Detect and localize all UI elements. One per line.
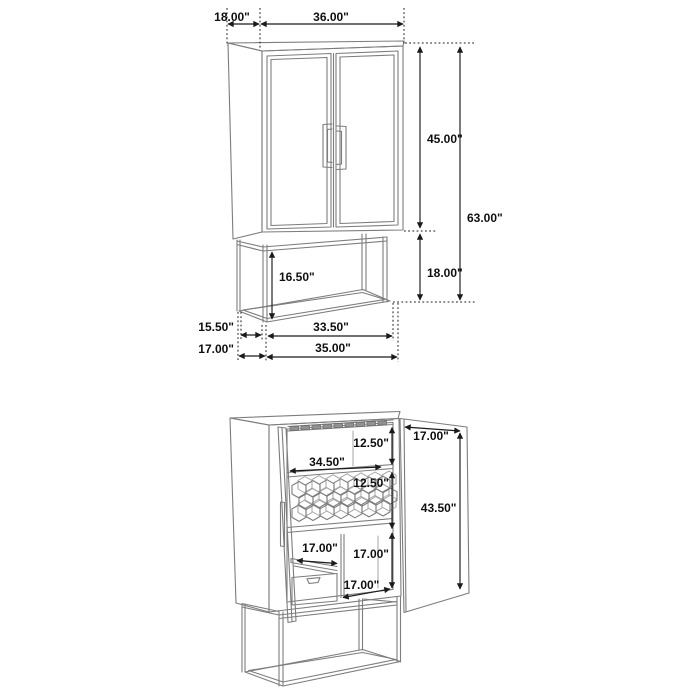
- dim-label-wine-rack-height: 12.50": [353, 476, 389, 490]
- cabinet-open-base-frame: [242, 597, 401, 686]
- base-leg-back-left: [237, 240, 240, 311]
- dim-label-base-opening-height: 16.50": [279, 270, 315, 284]
- closed-view-dimension-lines: [227, 8, 475, 362]
- cabinet-side-panel: [228, 43, 262, 239]
- cabinet-side-panel-open: [230, 418, 269, 612]
- drawer-handle-notch: [307, 578, 320, 584]
- diagram-canvas: 18.00" 36.00" 45.00" 63.00" 18.00" 16.50…: [0, 0, 700, 700]
- door-handle-right: [337, 126, 346, 170]
- base-leg-front-left: [263, 245, 267, 322]
- base-top-rail-left: [237, 241, 263, 251]
- base-leg-back-left-open: [242, 604, 245, 672]
- dim-label-bottom-shelf-depth: 17.00": [344, 578, 380, 592]
- door-right: [336, 51, 398, 227]
- closed-cabinet-view: 18.00" 36.00" 45.00" 63.00" 18.00" 16.50…: [198, 8, 502, 362]
- closed-view-dimension-labels: 18.00" 36.00" 45.00" 63.00" 18.00" 16.50…: [198, 10, 502, 356]
- dim-label-cabinet-height: 45.00": [427, 132, 463, 146]
- mid-shelf: [287, 519, 393, 533]
- cabinet-front-face: [262, 46, 403, 232]
- bar-cabinet-dimension-diagram: 18.00" 36.00" 45.00" 63.00" 18.00" 16.50…: [0, 0, 700, 700]
- dim-label-drawer-width: 17.00": [302, 541, 338, 555]
- base-leg-front-right-open: [397, 597, 401, 662]
- dim-label-base-height: 18.00": [427, 266, 463, 280]
- open-cabinet-view: 12.50" 34.50" 12.50" 17.00" 43.50" 17.00…: [230, 412, 469, 687]
- dim-label-door-height: 43.50": [421, 501, 457, 515]
- door-right-open: [400, 419, 469, 613]
- dim-label-overall-height: 63.00": [467, 211, 503, 225]
- door-left: [267, 54, 331, 230]
- dim-label-door-width: 17.00": [413, 429, 449, 443]
- base-top-rails-open: [242, 599, 397, 619]
- base-leg-front-left-open: [279, 612, 283, 686]
- base-leg-back-right-open: [359, 599, 363, 650]
- extension-lines: [227, 8, 475, 362]
- dim-label-base-width-inner: 33.50": [313, 320, 349, 334]
- dim-label-base-depth-inner: 15.50": [198, 320, 234, 334]
- dim-label-lower-section-height: 17.00": [353, 547, 389, 561]
- dim-label-base-width-outer: 35.00": [315, 341, 351, 355]
- dim-label-stemware-height: 12.50": [353, 436, 389, 450]
- dim-label-interior-width: 34.50": [309, 455, 345, 469]
- base-leg-front-right: [383, 237, 387, 302]
- door-left-inner-edge: [271, 58, 327, 226]
- open-view-dimension-labels: 12.50" 34.50" 12.50" 17.00" 43.50" 17.00…: [302, 429, 456, 592]
- dim-label-top-width: 36.00": [313, 10, 349, 24]
- cabinet-closed-body: [228, 41, 404, 239]
- door-right-inner-edge: [340, 55, 394, 224]
- dim-label-base-depth-outer: 17.00": [198, 342, 234, 356]
- stemware-rack-blocks: [290, 421, 387, 431]
- dim-label-top-depth: 18.00": [214, 10, 250, 24]
- base-top-rail-front: [263, 237, 387, 251]
- door-right-thickness-edge: [404, 419, 406, 612]
